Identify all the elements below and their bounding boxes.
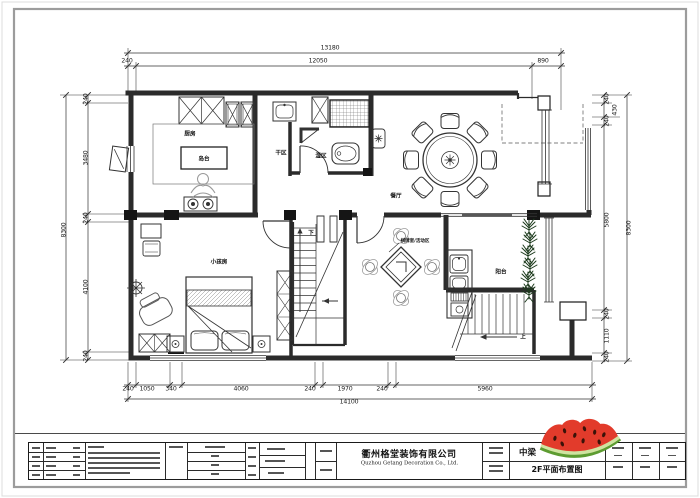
logo-mark (489, 447, 503, 449)
notes-text (88, 446, 104, 448)
company-name-en: Quzhou Getang Decoration Co., Ltd. (361, 460, 457, 466)
balcony-fixtures (447, 219, 537, 318)
drawing-title: 2F平面布置图 (509, 464, 605, 475)
drawing-sheet: 1318024012050890240348024041002408300240… (0, 0, 700, 498)
project-name: 中梁 (519, 446, 536, 458)
kids-room-furniture (127, 224, 293, 353)
person-figure (191, 174, 215, 198)
company-name-cn: 衢州格堂装饰有限公司 (336, 447, 482, 460)
shower-area (330, 100, 369, 127)
dining-table (404, 114, 497, 207)
central-staircase (293, 216, 345, 345)
lounge-chair (134, 289, 175, 328)
wall-heater (372, 129, 385, 148)
walls (126, 91, 593, 359)
vanity-sink (273, 102, 296, 121)
company-cell: 衢州格堂装饰有限公司 Quzhou Getang Decoration Co.,… (336, 443, 482, 479)
watermelon-sticker (535, 414, 625, 465)
sliding-door (441, 214, 537, 217)
